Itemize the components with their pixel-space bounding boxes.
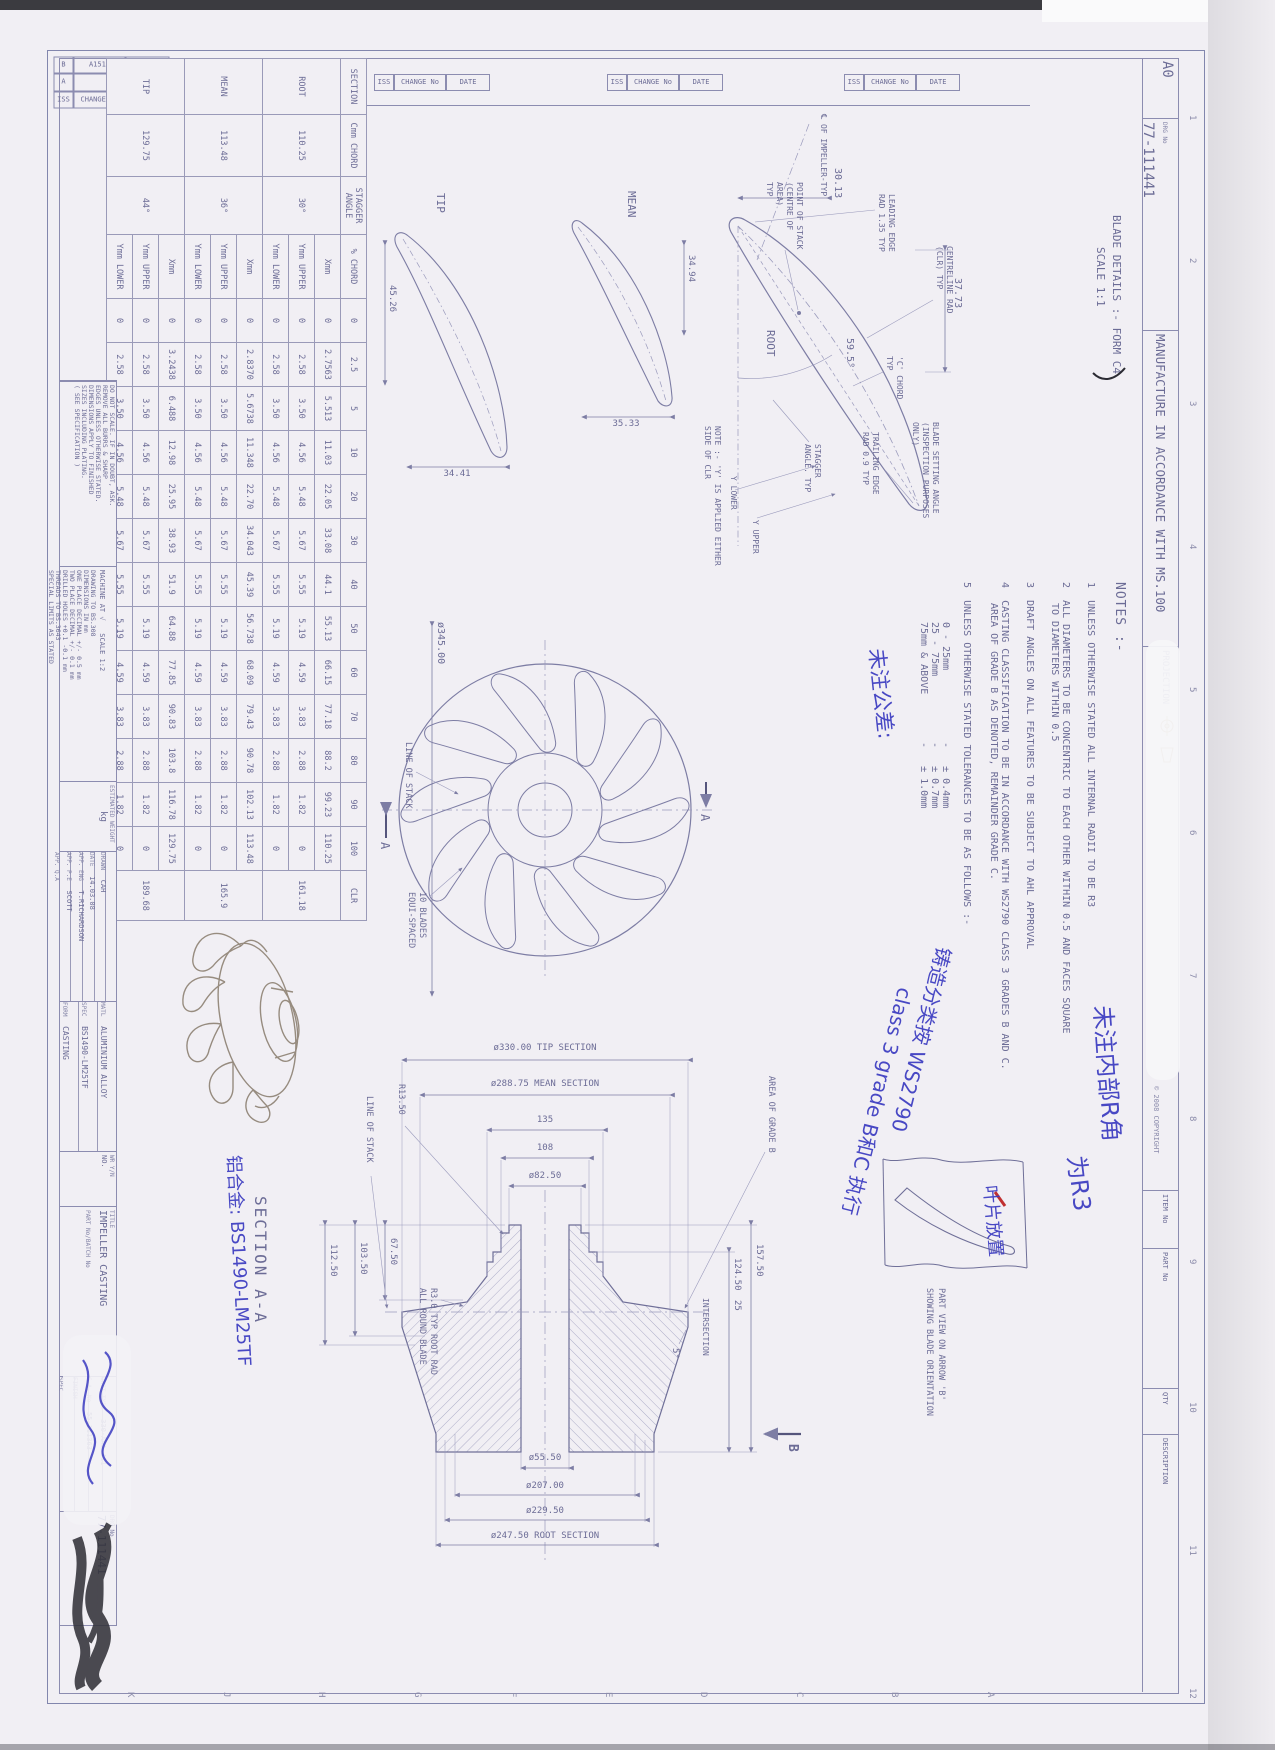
drawing-sheet: 123456789101112 ABCDEFGHJK A0 DRG No 77-… [0,0,1275,1750]
dark-marker-scribble [77,1524,109,1688]
scanned-engineering-drawing: 123456789101112 ABCDEFGHJK A0 DRG No 77-… [0,0,1275,1750]
scan-artifacts [0,0,1275,1750]
